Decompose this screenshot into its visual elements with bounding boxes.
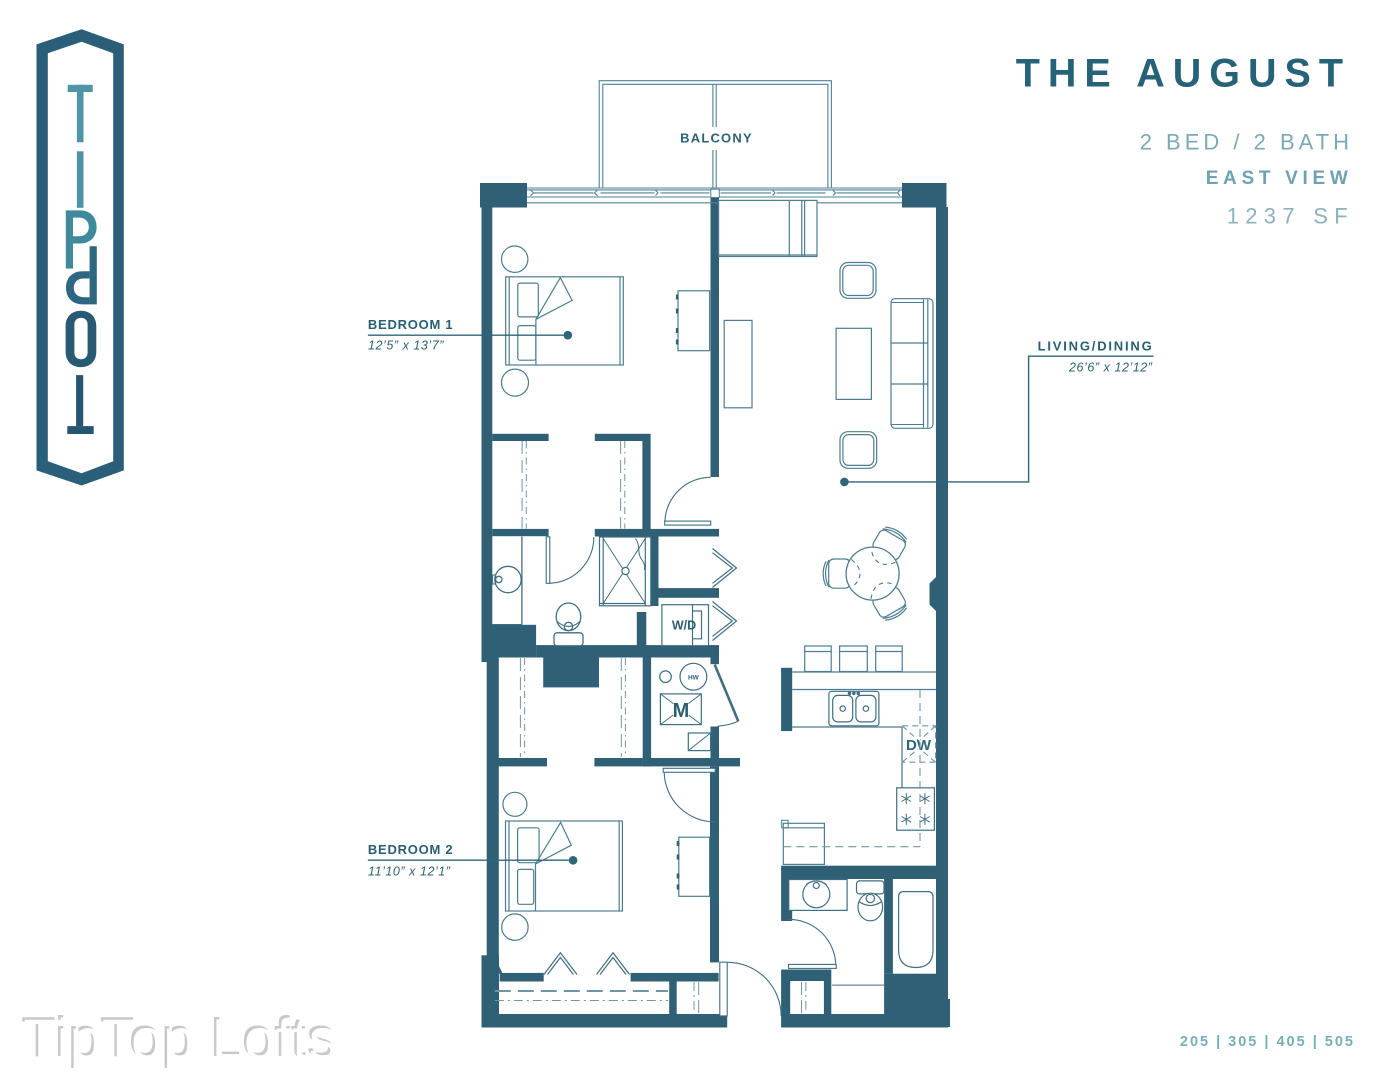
svg-text:205 | 305 | 405 | 505: 205 | 305 | 405 | 505 xyxy=(1180,1034,1355,1050)
svg-text:DW: DW xyxy=(906,737,932,754)
svg-text:1237 SF: 1237 SF xyxy=(1227,204,1354,229)
svg-text:THE AUGUST: THE AUGUST xyxy=(1016,52,1351,96)
svg-text:TipTop Lofts: TipTop Lofts xyxy=(24,1008,338,1072)
svg-text:2 BED / 2 BATH: 2 BED / 2 BATH xyxy=(1140,129,1353,154)
svg-text:26’6” x 12’12”: 26’6” x 12’12” xyxy=(1068,361,1153,375)
svg-text:12’5” x 13’7”: 12’5” x 13’7” xyxy=(368,338,444,352)
svg-text:W/D: W/D xyxy=(672,619,696,633)
svg-text:LIVING/DINING: LIVING/DINING xyxy=(1038,339,1154,354)
svg-text:EAST VIEW: EAST VIEW xyxy=(1206,168,1353,189)
svg-text:BALCONY: BALCONY xyxy=(680,131,753,146)
svg-text:BEDROOM 1: BEDROOM 1 xyxy=(368,317,453,332)
svg-text:BEDROOM 2: BEDROOM 2 xyxy=(368,842,453,857)
svg-text:M: M xyxy=(673,700,690,722)
svg-text:11’10” x 12’1”: 11’10” x 12’1” xyxy=(368,865,451,879)
svg-text:HW: HW xyxy=(688,675,700,682)
